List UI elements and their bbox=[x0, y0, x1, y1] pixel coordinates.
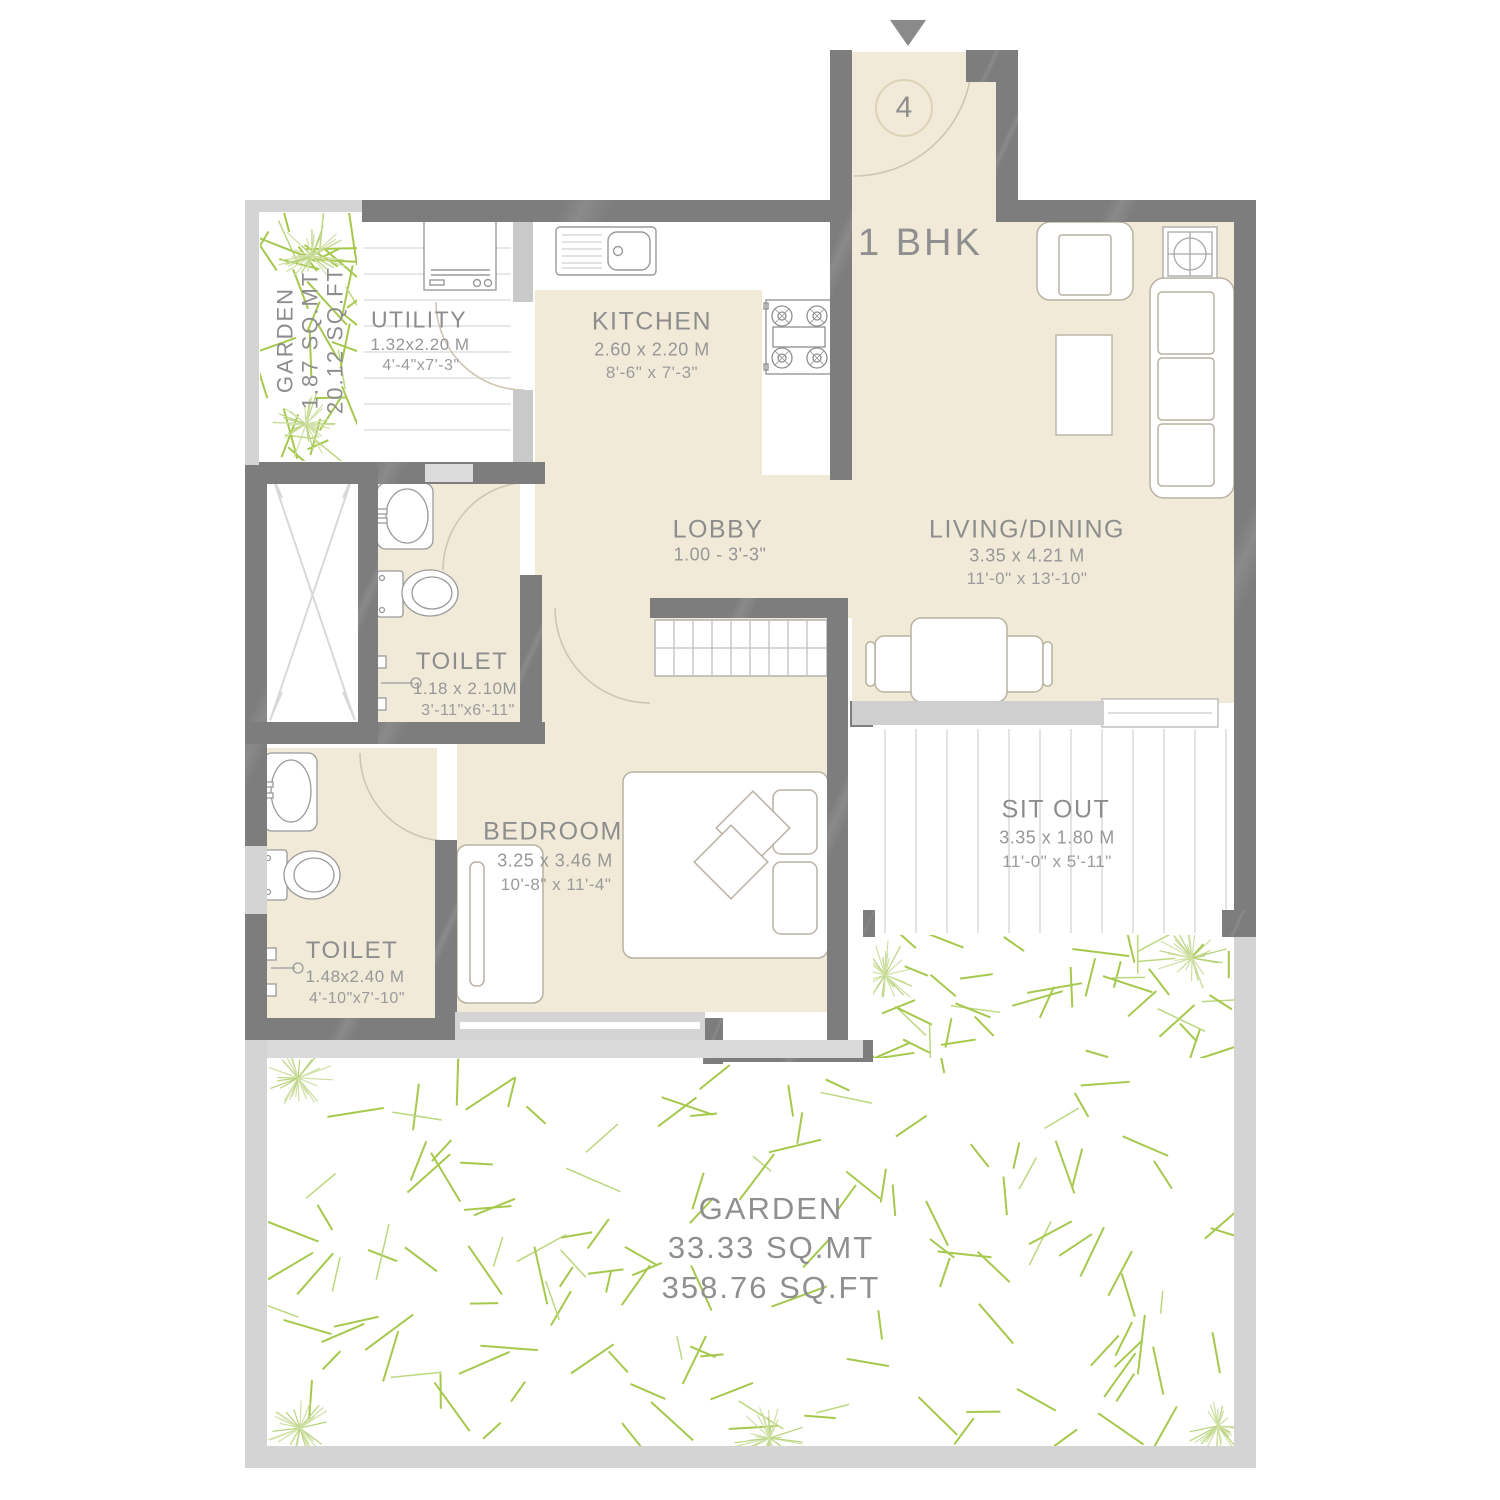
wall bbox=[996, 80, 1018, 212]
wall bbox=[966, 50, 1018, 82]
duct-area bbox=[267, 468, 358, 722]
room-label-lobby: LOBBY bbox=[673, 516, 764, 545]
sitout-dimensions-ft: 11'-0" x 5'-11" bbox=[1002, 852, 1112, 872]
wall bbox=[245, 722, 545, 744]
toilet-upper-dimensions-m: 1.18 x 2.10M bbox=[413, 679, 517, 699]
bedroom-dimensions-m: 3.25 x 3.46 M bbox=[497, 851, 613, 872]
wall bbox=[650, 598, 848, 618]
wall bbox=[1234, 222, 1256, 937]
utility-dimensions-m: 1.32x2.20 M bbox=[370, 335, 469, 355]
toilet-lower-dimensions-m: 1.48x2.40 M bbox=[305, 967, 404, 987]
garden-small-name: GARDEN bbox=[273, 266, 298, 414]
garden-strip-edge bbox=[245, 200, 259, 465]
living-dimensions-ft: 11'-0" x 13'-10" bbox=[967, 569, 1088, 589]
garden-plinth bbox=[267, 1040, 863, 1058]
wall bbox=[520, 575, 542, 744]
living-dimensions-m: 3.35 x 4.21 M bbox=[969, 546, 1085, 567]
toilet-lower-dimensions-ft: 4'-10"x7'-10" bbox=[309, 990, 405, 1008]
toilet-lower-window bbox=[245, 846, 267, 914]
sitout-dimensions-m: 3.35 x 1.80 M bbox=[999, 828, 1115, 849]
garden-area-right bbox=[873, 935, 1234, 1058]
wall bbox=[245, 1018, 457, 1040]
sitout-sliding-frame bbox=[852, 701, 1104, 725]
floor-plan: 1 BHK 4 UTILITY 1.32x2.20 M 4'-4"x7'-3" … bbox=[0, 0, 1500, 1500]
kitchen-dimensions-m: 2.60 x 2.20 M bbox=[594, 340, 710, 361]
garden-small-area-sqft: 20.12 SQ.FT bbox=[323, 266, 348, 414]
entrance-number: 4 bbox=[896, 91, 913, 125]
sliding-door-icon bbox=[1102, 699, 1218, 727]
garden-frame-right bbox=[1234, 937, 1256, 1468]
toilet-upper-vent-sill bbox=[425, 464, 473, 482]
wall bbox=[245, 465, 267, 1040]
room-label-sit-out: SIT OUT bbox=[1002, 796, 1111, 825]
lobby-dimensions: 1.00 - 3'-3" bbox=[674, 545, 767, 566]
kitchen-counter-top bbox=[535, 222, 830, 290]
utility-dimensions-ft: 4'-4"x7'-3" bbox=[382, 357, 459, 375]
wall bbox=[830, 50, 852, 480]
utility-wall-lower bbox=[513, 390, 533, 462]
room-label-utility: UTILITY bbox=[371, 307, 467, 334]
entrance-number-badge: 4 bbox=[875, 79, 933, 137]
wall bbox=[1222, 910, 1256, 937]
garden-frame-left bbox=[245, 1040, 267, 1468]
wall bbox=[362, 200, 830, 222]
wall bbox=[358, 468, 378, 744]
garden-frame-bottom bbox=[245, 1446, 1256, 1468]
wall bbox=[863, 910, 875, 937]
room-label-toilet-lower: TOILET bbox=[306, 937, 399, 965]
wall bbox=[245, 462, 545, 484]
wall bbox=[827, 618, 848, 1040]
garden-small-label: GARDEN 1.87 SQ.MT 20.12 SQ.FT bbox=[273, 266, 348, 414]
floor-living-dining bbox=[852, 222, 1234, 703]
wall bbox=[996, 200, 1256, 222]
unit-type-label: 1 BHK bbox=[858, 222, 983, 265]
garden-large-area-sqmt: 33.33 SQ.MT bbox=[668, 1230, 874, 1266]
utility-wall-upper bbox=[513, 222, 533, 302]
room-label-toilet-upper: TOILET bbox=[416, 648, 509, 676]
garden-small-area-sqmt: 1.87 SQ.MT bbox=[298, 266, 323, 414]
bedroom-dimensions-ft: 10'-8" x 11'-4" bbox=[501, 875, 612, 895]
kitchen-counter-right bbox=[762, 290, 830, 475]
wall bbox=[435, 840, 457, 1040]
room-label-kitchen: KITCHEN bbox=[592, 308, 712, 337]
entrance-arrow-icon bbox=[890, 20, 926, 46]
bedroom-window-glass-line bbox=[460, 1022, 700, 1029]
garden-large-area-sqft: 358.76 SQ.FT bbox=[662, 1270, 881, 1306]
room-label-bedroom: BEDROOM bbox=[483, 818, 623, 847]
garden-strip-top-edge bbox=[245, 200, 362, 212]
kitchen-dimensions-ft: 8'-6" x 7'-3" bbox=[606, 363, 698, 383]
room-label-living-dining: LIVING/DINING bbox=[929, 516, 1125, 545]
toilet-upper-dimensions-ft: 3'-11"x6'-11" bbox=[421, 702, 515, 720]
garden-large-name: GARDEN bbox=[699, 1191, 844, 1227]
